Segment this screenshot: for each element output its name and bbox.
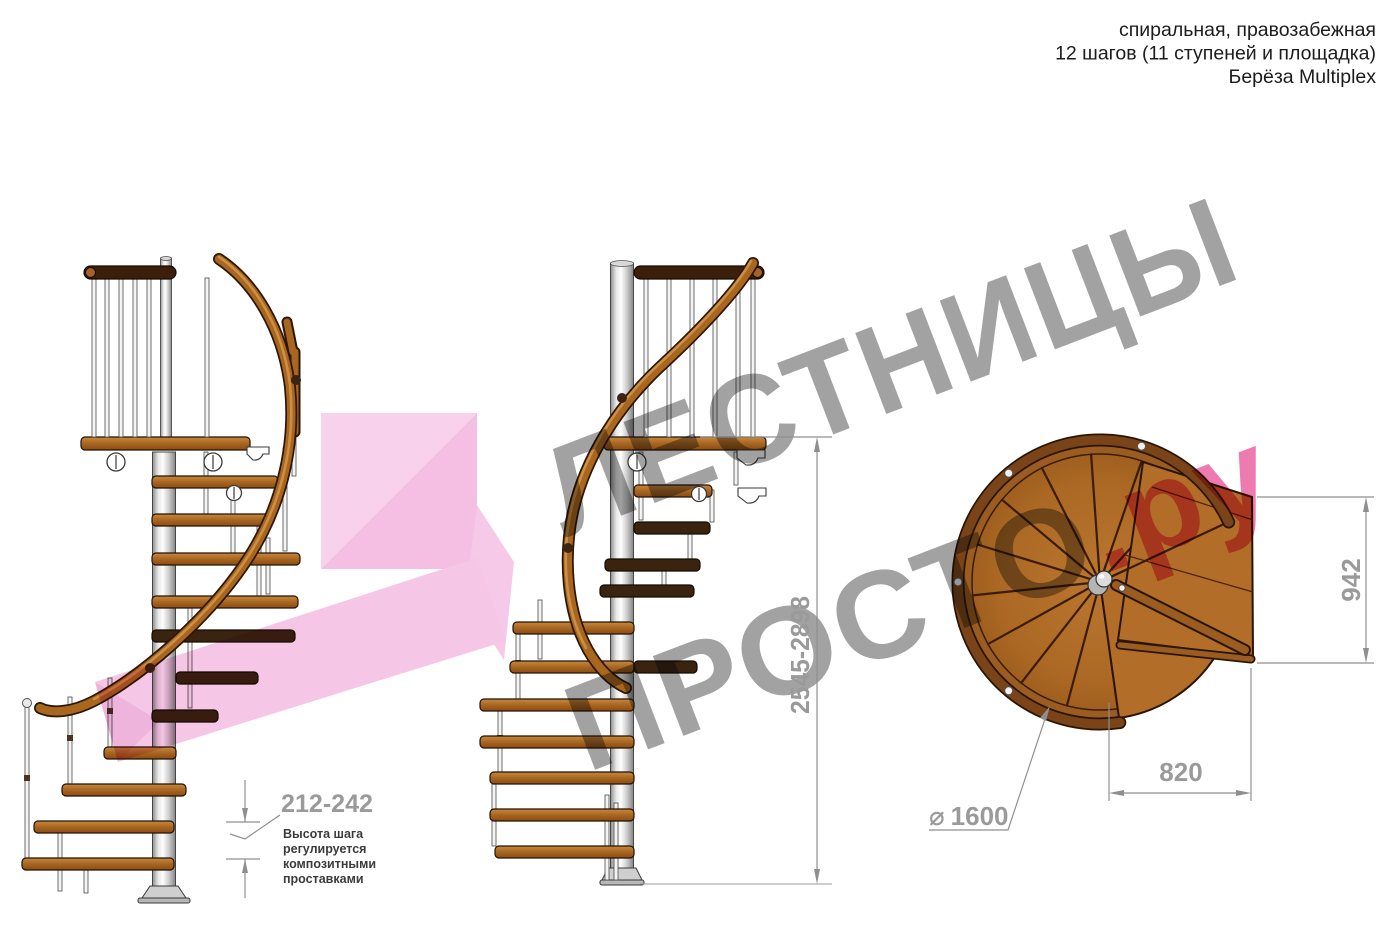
spiral-staircase-technical-drawing: ЛЕСТНИЦЫ ПРОСТО.ру 2545-2898 212-242 Выс… <box>0 0 1400 947</box>
title-line2: 12 шагов (11 ступеней и площадка) <box>1055 43 1376 65</box>
dimension-step-height: 212-242 Высота шага регулируется компози… <box>226 780 376 898</box>
landing-railing-left <box>84 266 209 437</box>
diameter-symbol: ⌀ <box>929 801 945 831</box>
landing-platform-left <box>81 437 250 450</box>
title-block: спиральная, правозабежная 12 шагов (11 с… <box>1055 19 1376 88</box>
site-watermark: ЛЕСТНИЦЫ ПРОСТО.ру <box>524 169 1293 798</box>
total-height-value: 2545-2898 <box>785 596 815 714</box>
wall-bracket <box>247 447 269 460</box>
landing-width-value: 820 <box>1159 757 1202 787</box>
diameter-label: ⌀1600 <box>929 801 1009 831</box>
landing-depth-value: 942 <box>1336 558 1366 601</box>
side-view-left <box>22 257 301 904</box>
title-line1: спиральная, правозабежная <box>1119 19 1376 41</box>
diameter-value: 1600 <box>951 801 1009 831</box>
dimension-diameter: ⌀1600 <box>929 706 1050 831</box>
step-height-note-3: композитными <box>283 857 376 871</box>
title-line3: Берёза Multiplex <box>1229 66 1377 88</box>
step-height-value: 212-242 <box>281 790 373 818</box>
step-height-note-1: Высота шага <box>283 827 364 841</box>
step-height-note-4: проставками <box>283 872 364 886</box>
step-height-note-2: регулируется <box>283 842 366 856</box>
